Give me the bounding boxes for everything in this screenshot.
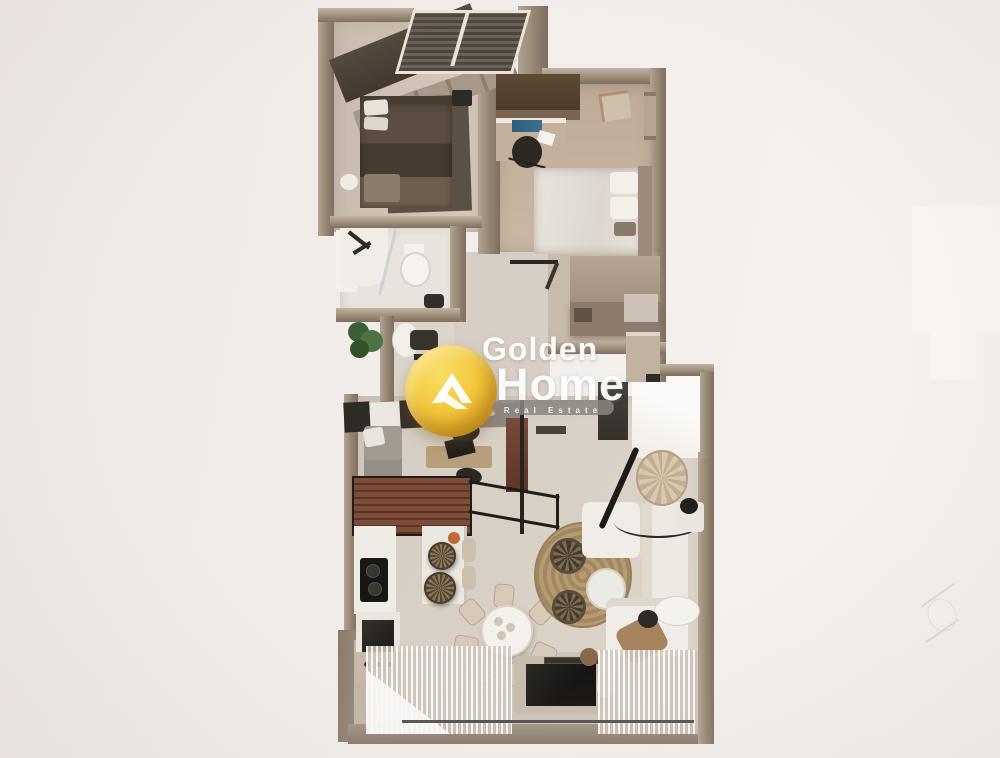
black-plant <box>680 498 698 514</box>
house-glyph <box>422 361 480 419</box>
balcony-rail-line <box>402 720 694 723</box>
pendant-lamp <box>428 542 456 570</box>
bed2-headboard <box>638 166 652 256</box>
laptop <box>512 120 542 132</box>
plant <box>350 340 369 358</box>
hanging-chair <box>636 450 688 506</box>
bed1-pillow <box>364 116 389 130</box>
plate <box>497 631 506 640</box>
tagline-text: Real Estate <box>504 406 602 415</box>
wall-poster <box>598 90 632 122</box>
tv-screen <box>526 664 596 706</box>
dark-tray <box>638 610 658 628</box>
bed2-pillow <box>610 172 638 194</box>
bed1-pillow <box>364 99 389 116</box>
pinecone-basket <box>552 590 586 624</box>
floorplan-render: Golden Home Real Estate <box>0 0 1000 758</box>
living-right-wall <box>698 452 714 744</box>
plate <box>506 623 515 632</box>
settee-pillow <box>363 426 386 447</box>
toilet-bowl <box>400 252 431 287</box>
bath-stool <box>424 294 444 308</box>
shower-tray <box>340 228 388 286</box>
plate <box>494 617 503 626</box>
bedroom1-left-wall <box>318 8 334 236</box>
wood-stool <box>580 648 598 666</box>
closet-shelf-light <box>624 294 658 322</box>
nightstand <box>452 90 472 106</box>
bed1-bench <box>364 174 400 202</box>
entry-door-frame <box>510 260 558 264</box>
pendant-lamp <box>424 572 456 604</box>
bed2-throw-pillow <box>614 222 636 236</box>
bedroom1-top-wall <box>318 8 414 22</box>
wardrobe-brown <box>496 74 580 112</box>
wall-shelf <box>644 92 656 140</box>
oval-coffee-table <box>654 596 700 626</box>
bed2-pillow <box>610 197 638 219</box>
closet-box-dark <box>574 308 592 322</box>
ottoman-white <box>340 174 358 190</box>
bar-stool <box>462 538 476 562</box>
copper-pot <box>448 532 460 544</box>
adjacent-unit-ghost <box>912 206 1000 332</box>
balcony-right-wall <box>700 372 714 458</box>
wc-left-wall <box>380 316 394 402</box>
burner <box>368 582 382 596</box>
red-curtain <box>506 418 528 492</box>
hall-living-wall-stub <box>536 426 566 434</box>
balcony-nook-floor <box>632 372 704 458</box>
balcony-vent <box>646 374 660 382</box>
bar-stool <box>462 566 476 590</box>
pinecone-basket <box>550 538 586 574</box>
adjacent-unit-ghost <box>929 330 976 380</box>
tagline-band: Real Estate <box>492 400 614 415</box>
burner <box>366 564 380 578</box>
bathroom-bottom-wall <box>336 308 460 322</box>
